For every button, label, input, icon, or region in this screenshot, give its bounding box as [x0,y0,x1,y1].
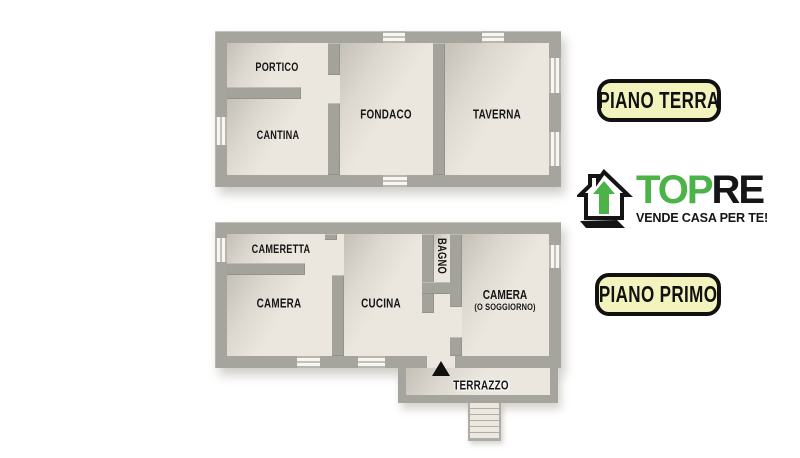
agency-logo: TOPRE VENDE CASA PER TE! [577,169,772,229]
floor-badge-terra: PIANO TERRA [597,79,721,122]
window [297,356,320,368]
window [215,117,227,145]
floorplan-piano-terra: PORTICO CANTINA FONDACO TAVERNA [215,31,561,187]
floor-badge-terra-label: PIANO TERRA [598,87,719,114]
wall-segment [433,43,445,175]
brand-top: TOP [636,168,712,212]
window [549,245,561,268]
wall-segment [328,43,340,75]
brand-re: RE [712,168,764,212]
house-arrow-up-icon [577,169,633,229]
room-label-portico: PORTICO [255,60,298,74]
room-label-terrazzo: TERRAZZO [453,378,509,393]
wall-segment [227,87,301,99]
window [549,58,561,93]
floorplan-piano-primo: CAMERETTA CAMERA CUCINA BAGNO CAMERA (O … [215,222,561,368]
wall-segment [332,275,344,356]
window [358,356,385,368]
window [383,175,407,187]
room-label-cantina: CANTINA [257,128,300,142]
floor-badge-primo-label: PIANO PRIMO [599,281,717,308]
room-label-camera2-line1: CAMERA [474,288,535,301]
room-label-camera: CAMERA [257,296,302,311]
entrance-arrow-icon [432,361,450,376]
window [549,132,561,166]
room-label-fondaco: FONDACO [360,107,412,122]
wall-segment [450,337,462,356]
brand-name: TOPRE [636,169,772,211]
stairs [468,403,501,441]
window [383,31,405,43]
wall-segment [328,103,340,175]
wall-segment [227,263,305,275]
room-label-cucina: CUCINA [361,296,401,311]
room-label-bagno: BAGNO [435,238,449,274]
room-label-camera2-line2: (O SOGGIORNO) [474,301,535,314]
room-label-taverna: TAVERNA [473,107,521,122]
room-label-cameretta: CAMERETTA [252,242,311,256]
brand-tagline: VENDE CASA PER TE! [636,210,768,225]
window [215,238,227,262]
window [482,31,504,43]
room-label-camera-soggiorno: CAMERA (O SOGGIORNO) [474,288,535,314]
wall-segment [325,234,337,240]
wall-segment [422,234,434,313]
wall-segment [450,234,462,307]
floor-badge-primo: PIANO PRIMO [595,273,721,316]
